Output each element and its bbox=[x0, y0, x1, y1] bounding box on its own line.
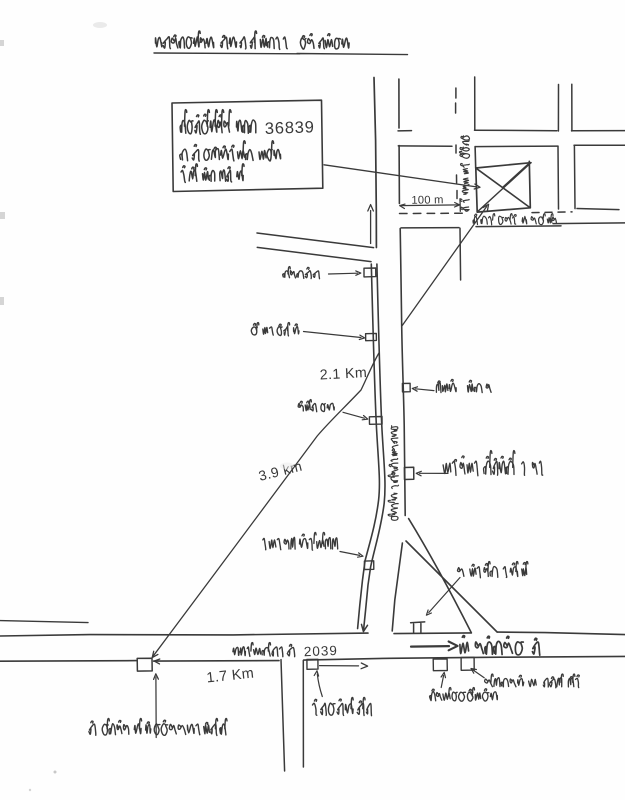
svg-text:36839: 36839 bbox=[265, 118, 315, 138]
svg-text:2039: 2039 bbox=[304, 643, 339, 659]
svg-text:2.1 Km: 2.1 Km bbox=[319, 365, 367, 383]
